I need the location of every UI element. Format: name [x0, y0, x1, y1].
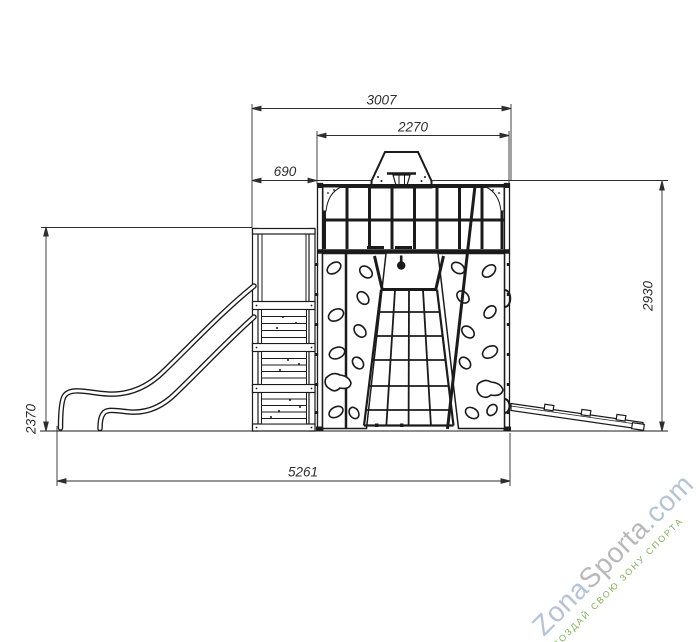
- corner-gusset-left: [323, 187, 341, 211]
- dimension-overall-length: [57, 479, 510, 484]
- basketball-backboard: [372, 152, 432, 188]
- dimension-tower-height: [660, 181, 665, 431]
- dim-label-2930: 2930: [641, 280, 656, 312]
- watermark-brand: ZonaSporta.com: [527, 469, 698, 640]
- platform-railing: [317, 186, 510, 252]
- corner-gusset-right: [486, 187, 504, 211]
- slide: [61, 286, 255, 429]
- climbing-panel-right: [438, 254, 510, 429]
- stair-tower: [253, 229, 316, 432]
- dimension-slide-height: [44, 227, 49, 431]
- dim-label-690: 690: [274, 164, 297, 179]
- dim-label-5261: 5261: [288, 465, 318, 480]
- dim-label-2270: 2270: [397, 120, 429, 135]
- dim-label-3007: 3007: [366, 93, 397, 108]
- technical-drawing-page: 3007 2270 690 2930 2370 5261 ZonaSporta.…: [0, 0, 700, 642]
- dim-label-2370: 2370: [24, 403, 39, 435]
- climbing-panel-left: [323, 254, 387, 429]
- playground-structure: [40, 152, 668, 431]
- hanging-ring: [397, 256, 405, 270]
- stair-slat-panels: [262, 310, 307, 425]
